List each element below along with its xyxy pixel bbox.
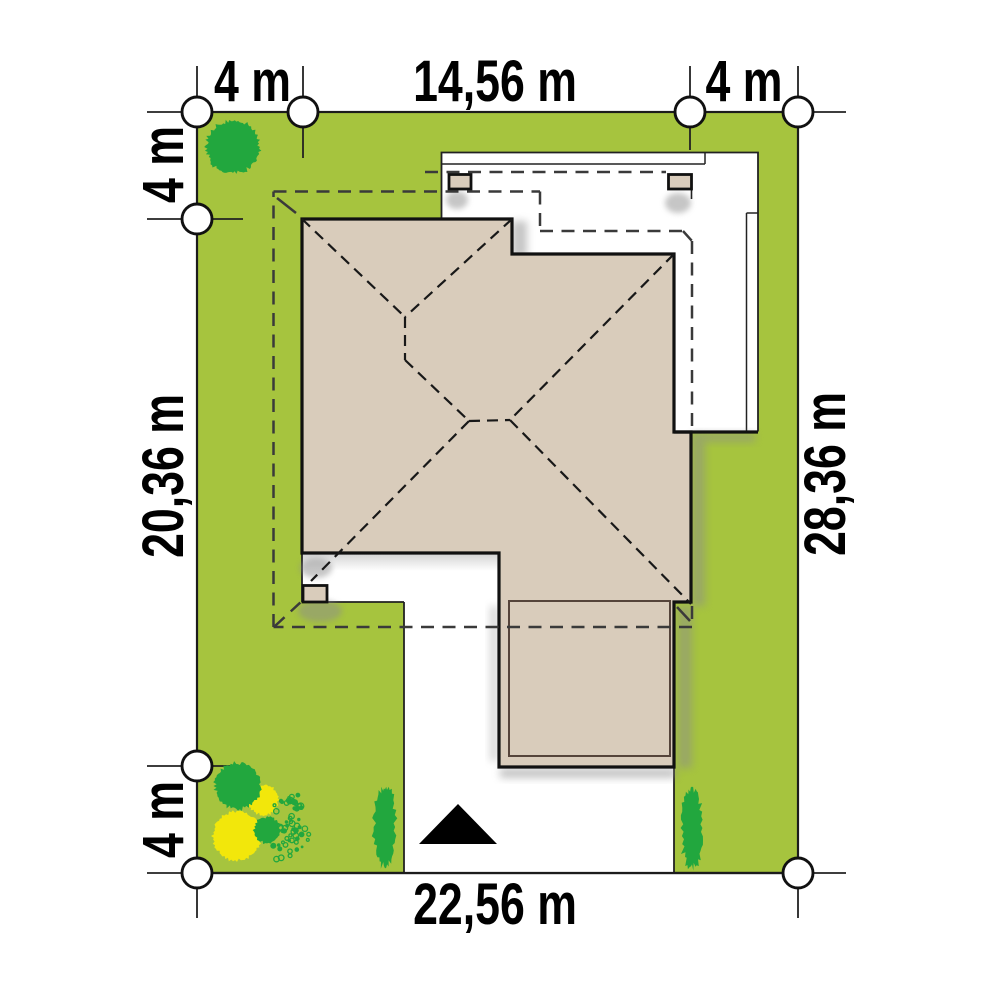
svg-text:20,36 m: 20,36 m [130,394,195,558]
svg-text:4 m: 4 m [130,126,195,203]
svg-text:14,56 m: 14,56 m [413,48,577,113]
svg-text:4 m: 4 m [706,48,783,113]
svg-text:4 m: 4 m [130,781,195,858]
svg-text:22,56 m: 22,56 m [413,871,577,936]
svg-text:4 m: 4 m [214,48,291,113]
svg-text:28,36 m: 28,36 m [792,392,857,556]
